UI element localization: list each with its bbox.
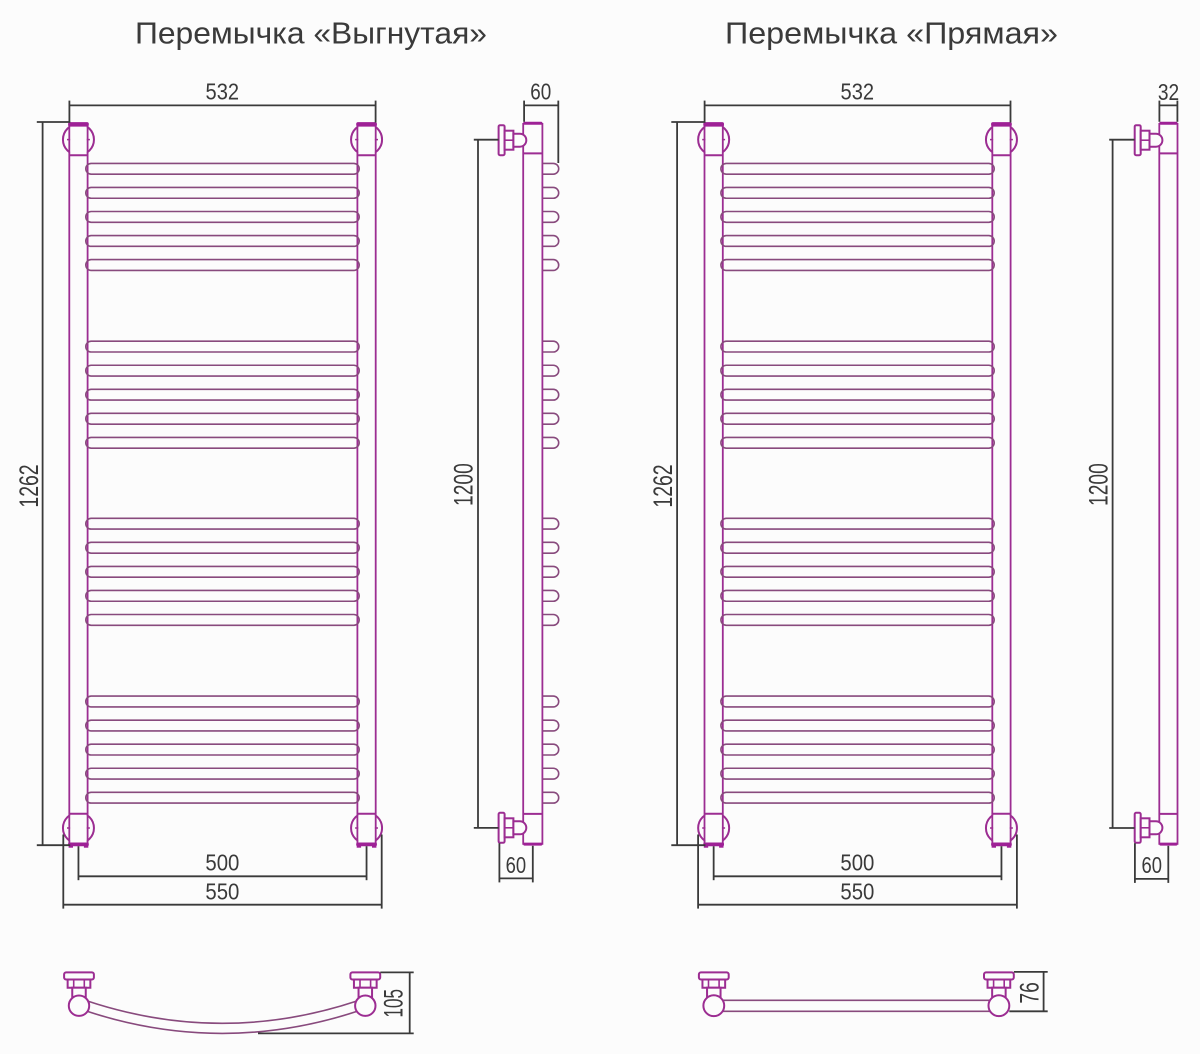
svg-text:532: 532 [841, 79, 875, 105]
svg-text:500: 500 [840, 850, 874, 876]
svg-text:532: 532 [206, 79, 240, 105]
svg-text:1262: 1262 [14, 464, 44, 507]
svg-text:Перемычка «Прямая»: Перемычка «Прямая» [725, 17, 1058, 51]
svg-text:32: 32 [1158, 79, 1179, 105]
svg-text:60: 60 [1142, 852, 1163, 878]
svg-text:1262: 1262 [648, 464, 678, 507]
svg-text:76: 76 [1015, 982, 1045, 1004]
svg-text:1200: 1200 [1083, 463, 1113, 506]
svg-text:550: 550 [205, 878, 239, 904]
svg-text:60: 60 [506, 852, 527, 878]
svg-text:1200: 1200 [449, 463, 479, 506]
svg-text:550: 550 [840, 878, 874, 904]
svg-text:60: 60 [530, 79, 551, 105]
svg-text:105: 105 [379, 989, 409, 1018]
svg-text:Перемычка «Выгнутая»: Перемычка «Выгнутая» [135, 17, 487, 51]
svg-text:500: 500 [205, 850, 239, 876]
